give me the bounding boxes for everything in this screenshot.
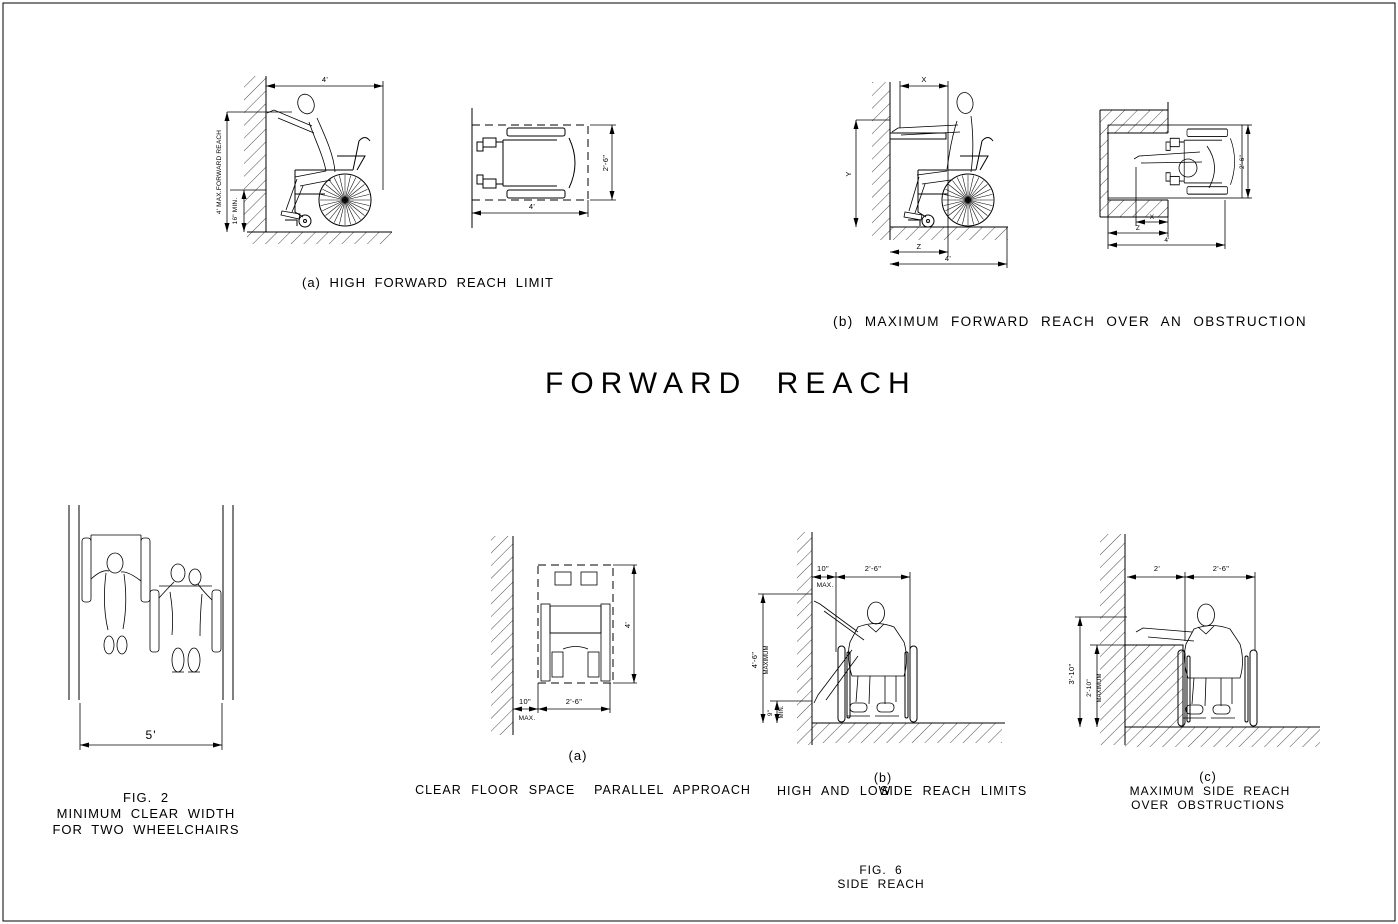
wheelchair-plan-vertical [541, 572, 610, 681]
corridor-walls [69, 505, 233, 700]
dim-30in-width: 2'-6" [601, 155, 610, 171]
dimensions [472, 125, 616, 217]
dim-obstruction-height-note: MAXIMUM [1097, 674, 1103, 703]
dim-max-reach: 3'-10" [1067, 664, 1076, 685]
fig6a-parallel-approach: 4' 10" MAX. 2'-6" (a) CLEAR FLOOR SPACE … [415, 536, 751, 797]
wall-hatch [491, 536, 513, 735]
dimensions [80, 703, 222, 750]
wall-hatch [244, 76, 266, 232]
dimensions [1108, 125, 1252, 249]
fig5b-caption: (b) MAXIMUM FORWARD REACH OVER AN OBSTRU… [833, 314, 1307, 329]
fig6c-side-reach-over-obstruction: 2' 2'-6" 3'-10" 2'-10" MAXIMUM (c) MAXIM… [1067, 534, 1320, 812]
fig4a-plan-view: 2'-6" 4' [472, 108, 616, 228]
fig5b-plan-view: 2'-6" X Z 4' [1100, 102, 1252, 249]
fig2-two-wheelchairs: 5' FIG. 2 MINIMUM CLEAR WIDTH FOR TWO WH… [52, 505, 239, 837]
dim-10in-note: MAX. [519, 715, 536, 722]
fig6c-label: (c) [1199, 770, 1217, 784]
dimensions [513, 565, 637, 713]
wall-hatch-left [1100, 133, 1108, 200]
fig2-caption-line3: FOR TWO WHEELCHAIRS [52, 822, 239, 837]
floor-hatch [247, 232, 392, 244]
drawing-canvas: 4' 4' MAX.FORWARD REACH 16" MIN. 2'-6" 4… [0, 0, 1398, 924]
fig2-caption-line2: MINIMUM CLEAR WIDTH [57, 806, 236, 821]
dim-30in: 2'-6" [865, 564, 881, 573]
dim-y: Y [844, 171, 853, 176]
fig5b-side-view: X Y Z 4' [844, 75, 1008, 268]
fig6-caption-line2: SIDE REACH [837, 877, 924, 891]
dim-30in-width: 2'-6" [1239, 155, 1246, 169]
dim-4ft: 4' [945, 254, 951, 263]
dim-z: Z [1136, 225, 1140, 232]
dimensions [758, 572, 910, 723]
dim-x: X [1150, 214, 1155, 221]
wall-floor-shelf [890, 82, 1008, 240]
dim-high-reach-note: MAXIMUM [764, 646, 770, 675]
dim-4ft: 4' [1164, 237, 1169, 244]
floor-hatch [890, 227, 1008, 240]
wheelchair-occupied-facing-up [150, 564, 221, 672]
wall-and-floor [247, 76, 392, 232]
person-front-view [814, 601, 907, 716]
dim-low-reach-note: MIN. [779, 705, 785, 718]
fig6c-caption-line2: OVER OBSTRUCTIONS [1131, 798, 1285, 812]
person-plan-reaching [1134, 146, 1215, 188]
fig4a-side-view: 4' 4' MAX.FORWARD REACH 16" MIN. [216, 75, 392, 244]
counter-hatch [1125, 645, 1183, 727]
dim-toe-clearance: 16" MIN. [232, 198, 239, 225]
wheelchair-plan-icon [477, 128, 575, 198]
wheelchair-plan-icon [1166, 129, 1235, 194]
dim-4ft-top: 4' [322, 75, 328, 84]
fig6b-caption-left: HIGH AND LOW [777, 784, 891, 798]
wall-hatch [797, 532, 812, 745]
floor-hatch [812, 723, 1002, 743]
wheelchair-occupied-facing-down [82, 535, 150, 654]
wall-hatch [1100, 534, 1125, 745]
fig6a-caption: CLEAR FLOOR SPACE PARALLEL APPROACH [415, 783, 751, 797]
dim-30in: 2'-6" [1213, 564, 1229, 573]
dim-obstruction-height: 2'-10" [1086, 679, 1093, 697]
fig6b-label: (b) [874, 771, 892, 785]
floor-hatch [1125, 727, 1320, 747]
fig6a-label: (a) [569, 748, 588, 763]
wheelchair-front-view [1178, 650, 1257, 726]
dim-10in: 10" [519, 697, 531, 706]
fig6b-caption-right: SIDE REACH LIMITS [880, 784, 1027, 798]
wall-hatch [872, 82, 890, 240]
dim-4ft: 4' [623, 622, 632, 628]
wheelchair-side-icon [285, 138, 371, 228]
clear-floor-space-outline [538, 565, 613, 683]
fig2-caption-line1: FIG. 2 [123, 790, 169, 805]
dim-10in-note: MAX. [817, 582, 834, 589]
fig6-caption-line1: FIG. 6 [859, 863, 902, 877]
dim-obstruction-depth: 2' [1154, 564, 1160, 573]
sheet-title: FORWARD REACH [545, 367, 917, 400]
fig6b-side-reach-limits: 10" MAX. 2'-6" 4'-6" MAXIMUM 9" MIN. HIG… [750, 532, 1027, 798]
dim-max-forward-reach: 4' MAX.FORWARD REACH [216, 130, 223, 214]
dim-10in: 10" [817, 564, 829, 573]
dim-high-reach: 4'-6" [750, 652, 759, 668]
dim-low-reach: 9" [767, 709, 774, 716]
cad-drawing-sheet: 4' 4' MAX.FORWARD REACH 16" MIN. 2'-6" 4… [0, 0, 1398, 924]
dim-30in: 2'-6" [566, 697, 582, 706]
fig4a-caption: (a) HIGH FORWARD REACH LIMIT [302, 275, 554, 290]
wall-hatch-bottom [1100, 200, 1168, 217]
dim-x: X [921, 75, 926, 84]
dim-4ft-length: 4' [529, 202, 535, 211]
wheelchair-side-icon [908, 138, 994, 228]
dim-z: Z [917, 242, 922, 251]
dim-5ft: 5' [146, 728, 157, 742]
wall-hatch-top [1100, 110, 1168, 133]
fig6c-caption-line1: MAXIMUM SIDE REACH [1130, 784, 1291, 798]
